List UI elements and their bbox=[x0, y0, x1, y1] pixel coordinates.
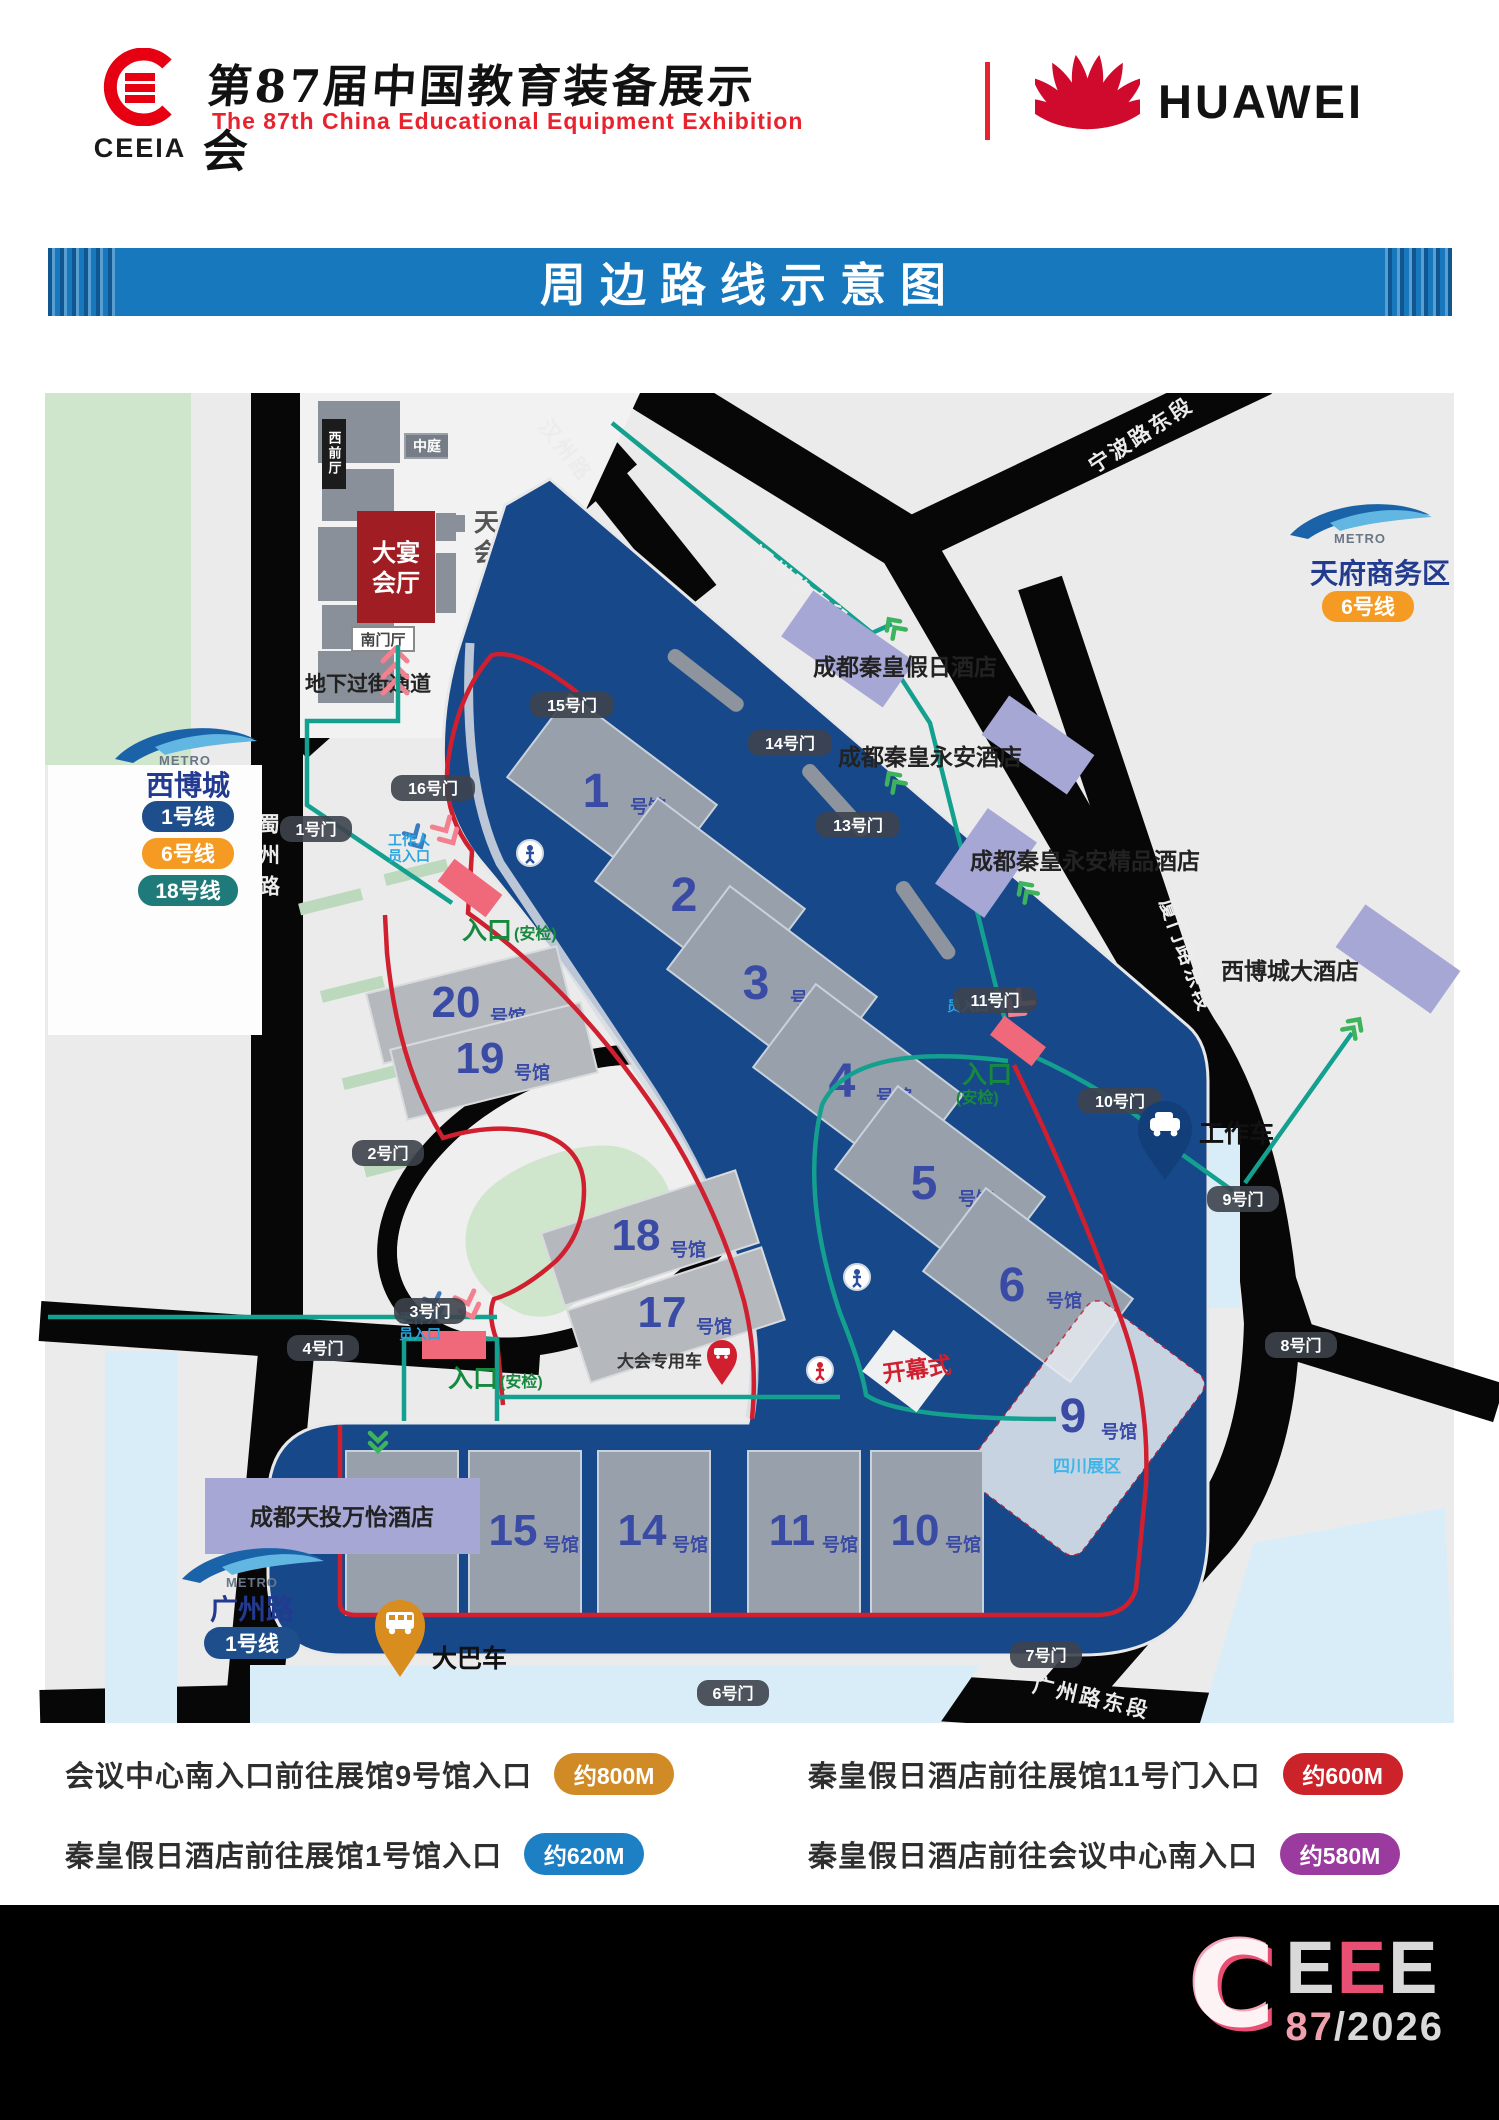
metro-brand-3: METRO bbox=[226, 1575, 278, 1590]
hall-17-number: 17 bbox=[638, 1288, 687, 1337]
ceeia-acronym: CEEIA bbox=[85, 133, 195, 164]
gate-7: 7号门 bbox=[1026, 1646, 1067, 1665]
gate-15: 15号门 bbox=[547, 696, 597, 715]
hall-18-suffix: 号馆 bbox=[670, 1239, 706, 1260]
gate-13: 13号门 bbox=[833, 816, 883, 835]
hall-6-number: 6 bbox=[999, 1259, 1026, 1312]
staff-entrance-south-2: 员入口 bbox=[399, 1326, 441, 1342]
entrance-north-security: (安检) bbox=[514, 924, 557, 943]
gate-16: 16号门 bbox=[408, 779, 458, 798]
hall-14-number: 14 bbox=[618, 1506, 667, 1555]
staff-entrance-label-1: 工作人 bbox=[388, 832, 431, 848]
atrium-label: 中庭 bbox=[413, 438, 442, 454]
hotel-qinhuang-yongan: 成都秦皇永安酒店 bbox=[838, 744, 1022, 770]
metro-brand-2: METRO bbox=[1334, 531, 1386, 546]
vip-car-label: 大会专用车 bbox=[617, 1351, 702, 1371]
hall-10-suffix: 号馆 bbox=[945, 1534, 981, 1555]
ceee-logo-letters: EEE bbox=[1285, 1935, 1444, 2001]
hall-6-suffix: 号馆 bbox=[1046, 1290, 1082, 1311]
ceee-year: /2026 bbox=[1334, 2005, 1444, 2049]
entrance-east-security: (安检) bbox=[956, 1088, 999, 1107]
hall-10-number: 10 bbox=[891, 1506, 940, 1555]
staff-entrance-label-2: 员入口 bbox=[388, 848, 430, 864]
metro-brand: METRO bbox=[159, 753, 211, 768]
gate-11: 11号门 bbox=[971, 991, 1020, 1010]
hall-11-suffix: 号馆 bbox=[822, 1534, 858, 1555]
guangzhou-line-1-badge: 1号线 bbox=[225, 1632, 279, 1656]
gate-14: 14号门 bbox=[765, 734, 815, 753]
hall-9-number: 9 bbox=[1060, 1390, 1087, 1443]
gate-9: 9号门 bbox=[1223, 1190, 1264, 1209]
exhibition-title-en: The 87th China Educational Equipment Exh… bbox=[212, 108, 803, 135]
ceee-logo: C EEE 87/2026 bbox=[1189, 1935, 1444, 2050]
route-map: 西前厅 中庭 大宴 会厅 南门厅 天府国际 会议中心 地下过街通道 bbox=[0, 393, 1499, 1723]
legend-text-4: 秦皇假日酒店前往会议中心南入口 bbox=[808, 1833, 1258, 1875]
map-title-banner: 周边路线示意图 bbox=[48, 248, 1452, 316]
footer-band: C EEE 87/2026 bbox=[0, 1905, 1499, 2120]
hall-19-suffix: 号馆 bbox=[514, 1062, 550, 1083]
entrance-east-label: 入口 bbox=[962, 1061, 1012, 1089]
gate-2: 2号门 bbox=[368, 1144, 409, 1163]
map-title: 周边路线示意图 bbox=[540, 249, 960, 315]
hall-15-suffix: 号馆 bbox=[543, 1534, 579, 1555]
park-northwest bbox=[45, 393, 191, 765]
hall-3-number: 3 bbox=[743, 957, 770, 1010]
station-xibocheng-name: 西博城 bbox=[146, 770, 230, 801]
gate-8: 8号门 bbox=[1281, 1336, 1322, 1355]
huawei-logo: HUAWEI bbox=[1035, 45, 1364, 140]
map-canvas: 西前厅 中庭 大宴 会厅 南门厅 天府国际 会议中心 地下过街通道 bbox=[0, 393, 1499, 1723]
hall-20-number: 20 bbox=[432, 978, 481, 1027]
hall-11-number: 11 bbox=[769, 1506, 816, 1555]
banquet-hall bbox=[357, 511, 435, 623]
banquet-hall-label-1: 大宴 bbox=[372, 539, 420, 567]
ceee-logo-c: C bbox=[1189, 1935, 1276, 2035]
hotel-tiantou-marriott: 成都天投万怡酒店 bbox=[250, 1504, 434, 1530]
legend-item-1: 会议中心南入口前往展馆9号馆入口 约800M bbox=[65, 1753, 674, 1795]
legend-distance-2: 约600M bbox=[1283, 1753, 1403, 1795]
bus-label: 大巴车 bbox=[432, 1644, 507, 1673]
hall-1-number: 1 bbox=[583, 765, 610, 818]
legend-distance-3: 约620M bbox=[524, 1833, 644, 1875]
gate-4: 4号门 bbox=[303, 1339, 344, 1358]
ceeia-ring-icon bbox=[101, 48, 179, 126]
line-1-badge: 1号线 bbox=[161, 805, 215, 829]
hotel-qinhuang-boutique: 成都秦皇永安精品酒店 bbox=[970, 848, 1200, 874]
legend-item-4: 秦皇假日酒店前往会议中心南入口 约580M bbox=[808, 1833, 1400, 1875]
hall-18-number: 18 bbox=[612, 1211, 661, 1260]
hall-14-suffix: 号馆 bbox=[672, 1534, 708, 1555]
gate-1: 1号门 bbox=[296, 820, 337, 839]
banquet-hall-label-2: 会厅 bbox=[372, 569, 420, 597]
ceee-edition-number: 87 bbox=[1285, 2005, 1334, 2049]
station-tianfu-name: 天府商务区 bbox=[1310, 557, 1450, 589]
header: CEEIA 第87届中国教育装备展示会 The 87th China Educa… bbox=[0, 0, 1499, 245]
west-hall-label: 西前厅 bbox=[327, 431, 342, 476]
legend-text-3: 秦皇假日酒店前往展馆1号馆入口 bbox=[65, 1833, 502, 1875]
gate-10: 10号门 bbox=[1095, 1092, 1145, 1111]
waterway-west bbox=[105, 1351, 177, 1723]
huawei-wordmark: HUAWEI bbox=[1158, 74, 1364, 129]
entrance-south-security: (安检) bbox=[500, 1372, 543, 1391]
hall-2-number: 2 bbox=[671, 869, 698, 922]
line-6-badge: 6号线 bbox=[161, 842, 215, 866]
ceee-e2: E bbox=[1337, 1926, 1388, 2009]
hall-19-number: 19 bbox=[456, 1034, 505, 1083]
hall-17-suffix: 号馆 bbox=[696, 1316, 732, 1337]
work-car-label: 工作车 bbox=[1199, 1119, 1274, 1148]
header-divider bbox=[985, 62, 990, 140]
hall-5-number: 5 bbox=[911, 1157, 938, 1210]
hall-9-suffix: 号馆 bbox=[1101, 1421, 1137, 1442]
line-18-badge: 18号线 bbox=[155, 879, 220, 903]
huawei-flower-icon bbox=[1035, 45, 1140, 140]
legend-item-3: 秦皇假日酒店前往展馆1号馆入口 约620M bbox=[65, 1833, 644, 1875]
ceee-edition: 87/2026 bbox=[1285, 2005, 1444, 2050]
tianfu-line-6-badge: 6号线 bbox=[1341, 595, 1395, 619]
plaza-south bbox=[250, 1665, 980, 1723]
entrance-south-label: 入口 bbox=[448, 1365, 498, 1393]
legend-distance-1: 约800M bbox=[554, 1753, 674, 1795]
legend-distance-4: 约580M bbox=[1280, 1833, 1400, 1875]
legend-item-2: 秦皇假日酒店前往展馆11号门入口 约600M bbox=[808, 1753, 1403, 1795]
station-guangzhou-name: 广州路 bbox=[210, 1594, 295, 1625]
ceee-e3: E bbox=[1388, 1926, 1439, 2009]
ceeia-logo: CEEIA bbox=[85, 48, 195, 164]
underpass-label: 地下过街通道 bbox=[305, 672, 431, 696]
legend-text-1: 会议中心南入口前往展馆9号馆入口 bbox=[65, 1753, 532, 1795]
gate-6: 6号门 bbox=[713, 1684, 754, 1703]
legend-text-2: 秦皇假日酒店前往展馆11号门入口 bbox=[808, 1753, 1261, 1795]
entrance-north-label: 入口 bbox=[462, 917, 512, 945]
station-xibocheng: METRO 西博城 1号线 6号线 18号线 bbox=[48, 728, 262, 1035]
ceee-e1: E bbox=[1285, 1926, 1336, 2009]
hall-15-number: 15 bbox=[489, 1506, 538, 1555]
gate-3: 3号门 bbox=[410, 1302, 451, 1321]
sichuan-zone-label: 四川展区 bbox=[1053, 1457, 1121, 1476]
page: CEEIA 第87届中国教育装备展示会 The 87th China Educa… bbox=[0, 0, 1499, 2120]
hotel-xibocheng-grand: 西博城大酒店 bbox=[1221, 958, 1359, 984]
hotel-qinhuang-holiday: 成都秦皇假日酒店 bbox=[813, 654, 997, 680]
center-bullet bbox=[448, 515, 465, 532]
